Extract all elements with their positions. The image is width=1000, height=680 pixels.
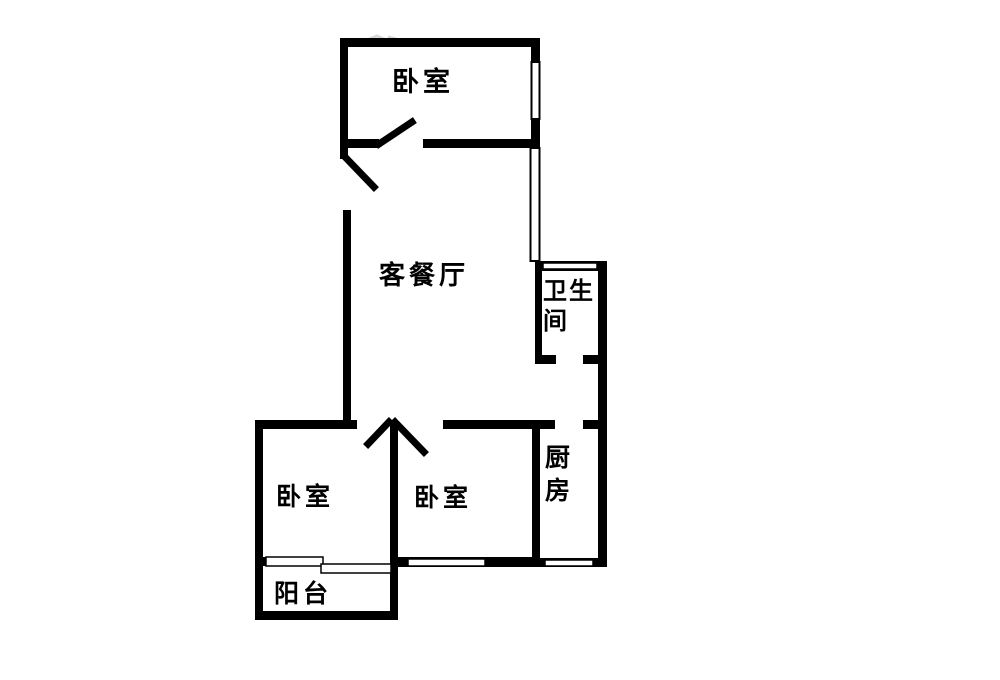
room-label-kitchen-line2: 房 [545,474,575,507]
room-label-bathroom: 卫生 间 [543,276,603,336]
floor-plan: 卧室 客餐厅 卫生 间 卧室 卧室 厨 房 阳台 [0,0,1000,680]
room-label-bedroom-top: 卧室 [363,60,483,99]
room-label-bedroom-left: 卧室 [245,477,365,513]
floor-plan-drawing [0,0,1000,680]
room-label-balcony: 阳台 [243,574,363,610]
room-label-bathroom-line2: 间 [543,306,603,336]
room-label-living-dining: 客餐厅 [364,255,484,292]
room-label-bedroom-middle: 卧室 [383,478,503,514]
room-label-bathroom-line1: 卫生 [543,276,603,306]
room-label-kitchen: 厨 房 [545,441,575,507]
room-label-kitchen-line1: 厨 [545,441,575,474]
